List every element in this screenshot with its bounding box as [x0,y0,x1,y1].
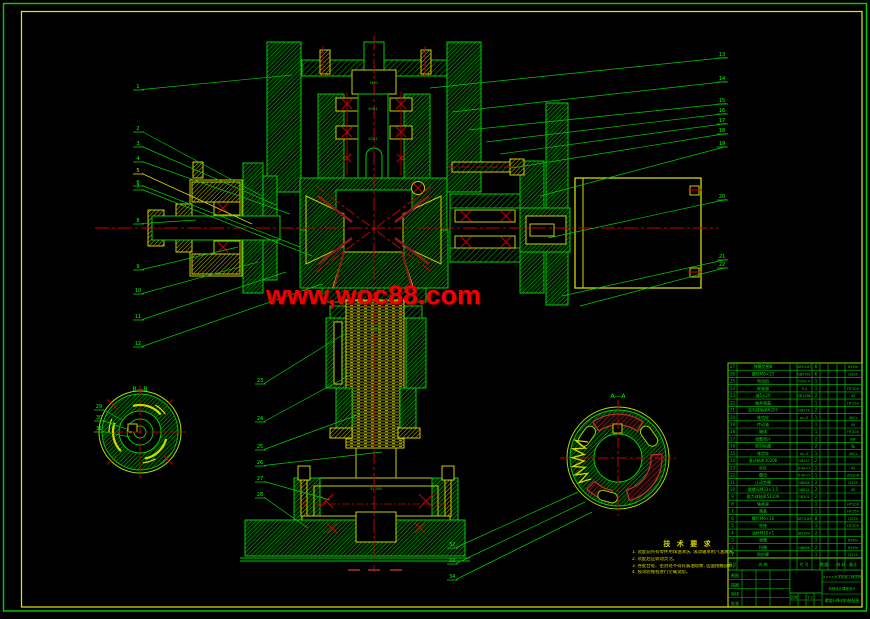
svg-text:8: 8 [731,501,734,506]
svg-text:Q215: Q215 [848,553,858,557]
svg-text:止动垫圈: 止动垫圈 [755,479,771,485]
svg-text:40Cr: 40Cr [849,452,858,456]
svg-text:2: 2 [815,408,818,413]
svg-text:27: 27 [730,364,736,369]
svg-text:2: 2 [815,444,818,449]
svg-text:8: 8 [136,218,139,224]
svg-text:GB70-85: GB70-85 [797,517,812,521]
svg-text:1: 1 [815,451,818,456]
svg-text:批准: 批准 [731,600,739,606]
svg-text:25: 25 [730,379,736,384]
svg-text:14: 14 [719,76,725,82]
svg-text:防护罩: 防护罩 [757,551,769,557]
svg-text:17: 17 [719,118,725,124]
svg-text:锥齿轮: 锥齿轮 [757,414,769,420]
svg-text:备注: 备注 [849,561,857,567]
svg-text:2: 2 [815,530,818,535]
svg-text:1: 1 [815,538,818,543]
svg-text:6204: 6204 [368,107,378,111]
svg-text:机械设计课程设计: 机械设计课程设计 [828,586,856,591]
svg-text:深沟球轴承6205: 深沟球轴承6205 [748,407,779,413]
svg-text:弹簧: 弹簧 [759,537,767,543]
svg-text:HT200: HT200 [847,502,859,506]
svg-text:65Mn: 65Mn [848,539,858,543]
svg-text:19: 19 [719,141,725,147]
svg-text:24: 24 [257,416,263,422]
svg-text:23: 23 [730,393,736,398]
svg-text:13: 13 [719,52,725,58]
svg-text:2: 2 [815,436,818,441]
svg-text:GB301: GB301 [798,495,809,499]
svg-text:1: 1 [815,415,818,420]
svg-text:12: 12 [135,341,141,347]
note-line: 4. 按试验规程进行空载试验。 [632,570,744,577]
svg-text:16: 16 [719,108,725,114]
svg-text:Q235: Q235 [848,517,858,521]
svg-text:挡圈: 挡圈 [759,544,767,550]
svg-text:轴承座: 轴承座 [757,500,769,506]
svg-text:9: 9 [136,264,139,270]
svg-text:2: 2 [815,480,818,485]
svg-text:丝杠: 丝杠 [759,464,767,470]
title-block: 序号名 称代 号数量材 料备注制图描图审核批准比例1:2××××大学机械工程学院… [728,558,862,607]
svg-text:键5×20: 键5×20 [756,392,771,398]
svg-text:21: 21 [730,408,736,413]
svg-text:M30: M30 [370,81,378,85]
svg-text:34: 34 [449,574,455,580]
svg-text:端盖: 端盖 [759,508,767,514]
svg-text:27: 27 [257,476,263,482]
svg-text:GB1096: GB1096 [797,394,811,398]
svg-text:31: 31 [96,426,102,432]
svg-text:圆螺母M33×1.5: 圆螺母M33×1.5 [748,486,779,492]
svg-text:65Mn: 65Mn [848,546,858,550]
base-assembly [240,466,470,570]
svg-text:代 号: 代 号 [799,561,808,567]
svg-text:m=3: m=3 [800,416,808,420]
technical-notes: 技 术 要 求 1. 装配前所有零件用煤油清洗, 滚动轴承用汽油清洗。 2. 装… [632,539,744,577]
svg-text:6: 6 [731,516,734,521]
svg-text:弹簧垫圈8: 弹簧垫圈8 [754,363,773,369]
svg-text:底座: 底座 [759,522,767,528]
svg-text:32: 32 [449,542,455,548]
svg-text:HT150: HT150 [847,510,859,514]
svg-text:箱体: 箱体 [759,428,767,434]
svg-text:名 称: 名 称 [758,561,767,567]
svg-text:45: 45 [851,423,856,427]
svg-text:m=3: m=3 [800,452,808,456]
svg-text:12: 12 [730,473,736,478]
svg-text:45: 45 [851,394,856,398]
svg-text:滚动轴承30206: 滚动轴承30206 [749,457,778,463]
svg-text:10: 10 [135,288,141,294]
svg-text:24: 24 [730,386,736,391]
svg-text:2: 2 [815,494,818,499]
svg-text:1: 1 [815,501,818,506]
svg-text:1:2: 1:2 [807,596,812,600]
svg-text:6: 6 [815,364,818,369]
svg-text:GB858: GB858 [798,481,809,485]
svg-text:17: 17 [730,436,736,441]
svg-text:轴承端盖: 轴承端盖 [755,399,771,405]
svg-text:33: 33 [449,558,455,564]
svg-text:审核: 审核 [731,591,739,597]
svg-text:1: 1 [136,84,139,90]
svg-text:GB5782: GB5782 [797,372,811,376]
motor-outline [575,178,702,288]
svg-text:5: 5 [136,168,139,174]
svg-text:GB93-87: GB93-87 [797,365,812,369]
svg-text:26: 26 [257,460,263,466]
svg-text:9: 9 [731,494,734,499]
cad-drawing-canvas: B—B A—A 12345678910111213141516171819202… [0,0,870,619]
note-line: 1. 装配前所有零件用煤油清洗, 滚动轴承用汽油清洗。 [632,550,744,557]
svg-text:19: 19 [730,422,736,427]
svg-text:20: 20 [719,194,725,200]
svg-text:45: 45 [851,466,856,470]
svg-text:30: 30 [96,415,102,421]
svg-text:11: 11 [730,480,736,485]
svg-text:1: 1 [815,465,818,470]
bom-table: 27弹簧垫圈8GB93-87665Mn26螺栓M8×25GB57826Q2352… [728,363,862,570]
svg-text:Tr40×7: Tr40×7 [368,327,382,331]
svg-text:1: 1 [815,552,818,557]
note-line: 3. 各配合处、密封处不得有漏油现象, 齿面接触良好。 [632,564,744,571]
svg-text:螺母: 螺母 [759,472,767,478]
svg-text:GB812: GB812 [798,488,809,492]
svg-text:描图: 描图 [731,581,739,587]
svg-text:JB7940: JB7940 [797,531,810,535]
svg-text:1: 1 [815,386,818,391]
svg-text:联轴器: 联轴器 [757,385,769,391]
svg-text:Tr40×7: Tr40×7 [797,474,810,478]
svg-text:23: 23 [257,378,263,384]
svg-text:16: 16 [730,444,736,449]
watermark: www,woc88.com [266,280,496,311]
svg-text:7: 7 [136,184,139,190]
svg-text:18: 18 [730,429,736,434]
svg-text:Tr40×7: Tr40×7 [797,466,810,470]
svg-text:8: 8 [815,516,818,521]
svg-text:2: 2 [815,458,818,463]
svg-text:GB276: GB276 [798,409,809,413]
svg-text:2: 2 [815,487,818,492]
svg-text:2: 2 [136,126,139,132]
svg-text:1: 1 [815,523,818,528]
svg-text:调整垫片: 调整垫片 [755,435,771,441]
svg-text:螺旋升降机构装配图: 螺旋升降机构装配图 [825,598,859,603]
svg-text:Q235: Q235 [848,481,858,485]
svg-text:电动机: 电动机 [757,378,769,384]
svg-text:65Mn: 65Mn [848,365,858,369]
svg-text:28: 28 [257,492,263,498]
svg-text:Q235: Q235 [848,372,858,376]
svg-text:6204: 6204 [368,137,378,141]
svg-text:1: 1 [815,379,818,384]
svg-text:材 料: 材 料 [836,561,845,567]
svg-text:40Cr: 40Cr [849,416,858,420]
svg-text:6: 6 [815,371,818,376]
svg-text:4: 4 [136,156,139,162]
svg-text:7: 7 [731,509,734,514]
svg-text:HT200: HT200 [847,430,859,434]
svg-text:Y90S-4: Y90S-4 [798,380,810,384]
svg-text:HT200: HT200 [847,524,859,528]
svg-text:08F: 08F [850,437,857,441]
svg-text:HT150: HT150 [847,401,859,405]
right-view-label: A—A [610,392,626,400]
svg-text:密封毡圈: 密封毡圈 [755,443,771,449]
svg-text:13: 13 [730,465,736,470]
svg-text:HT200: HT200 [847,387,859,391]
svg-text:1: 1 [815,509,818,514]
svg-text:25: 25 [257,444,263,450]
right-shaft-assembly [450,103,702,305]
svg-text:20: 20 [730,415,736,420]
svg-text:推力球轴承51106: 推力球轴承51106 [747,493,780,499]
svg-text:比例: 比例 [791,595,798,600]
svg-text:GB894: GB894 [798,546,809,550]
svg-text:1: 1 [815,473,818,478]
svg-text:1: 1 [815,422,818,427]
svg-text:45: 45 [851,488,856,492]
svg-text:15: 15 [719,98,725,104]
svg-text:15: 15 [730,451,736,456]
svg-text:1: 1 [815,429,818,434]
svg-text:22: 22 [730,400,736,405]
svg-text:26: 26 [730,371,736,376]
svg-text:××××大学机械工程学院: ××××大学机械工程学院 [823,574,862,579]
svg-text:数量: 数量 [820,561,828,567]
svg-text:10: 10 [730,487,736,492]
svg-text:螺钉M6×16: 螺钉M6×16 [752,515,775,521]
svg-text:1: 1 [815,400,818,405]
svg-text:18: 18 [719,128,725,134]
svg-text:2: 2 [815,393,818,398]
svg-text:GB297: GB297 [798,459,809,463]
svg-text:4: 4 [731,530,734,535]
svg-text:2: 2 [815,545,818,550]
svg-text:21: 21 [719,254,725,260]
svg-text:11: 11 [135,314,141,320]
svg-text:毡: 毡 [851,444,855,449]
note-line: 2. 装配后应转动灵活。 [632,557,744,564]
svg-text:ZQSn6: ZQSn6 [847,474,860,478]
svg-text:5: 5 [731,523,734,528]
svg-text:14: 14 [730,458,736,463]
svg-text:螺栓M8×25: 螺栓M8×25 [752,370,775,376]
svg-text:3: 3 [136,141,139,147]
svg-text:锥齿轮: 锥齿轮 [757,450,769,456]
svg-text:油杯M10×1: 油杯M10×1 [752,529,775,535]
svg-text:22: 22 [719,262,725,268]
svg-text:51106: 51106 [370,487,382,491]
svg-text:传动轴: 传动轴 [757,421,769,427]
svg-text:TL4: TL4 [800,387,807,391]
svg-text:29: 29 [96,404,102,410]
notes-title: 技 术 要 求 [632,539,744,549]
